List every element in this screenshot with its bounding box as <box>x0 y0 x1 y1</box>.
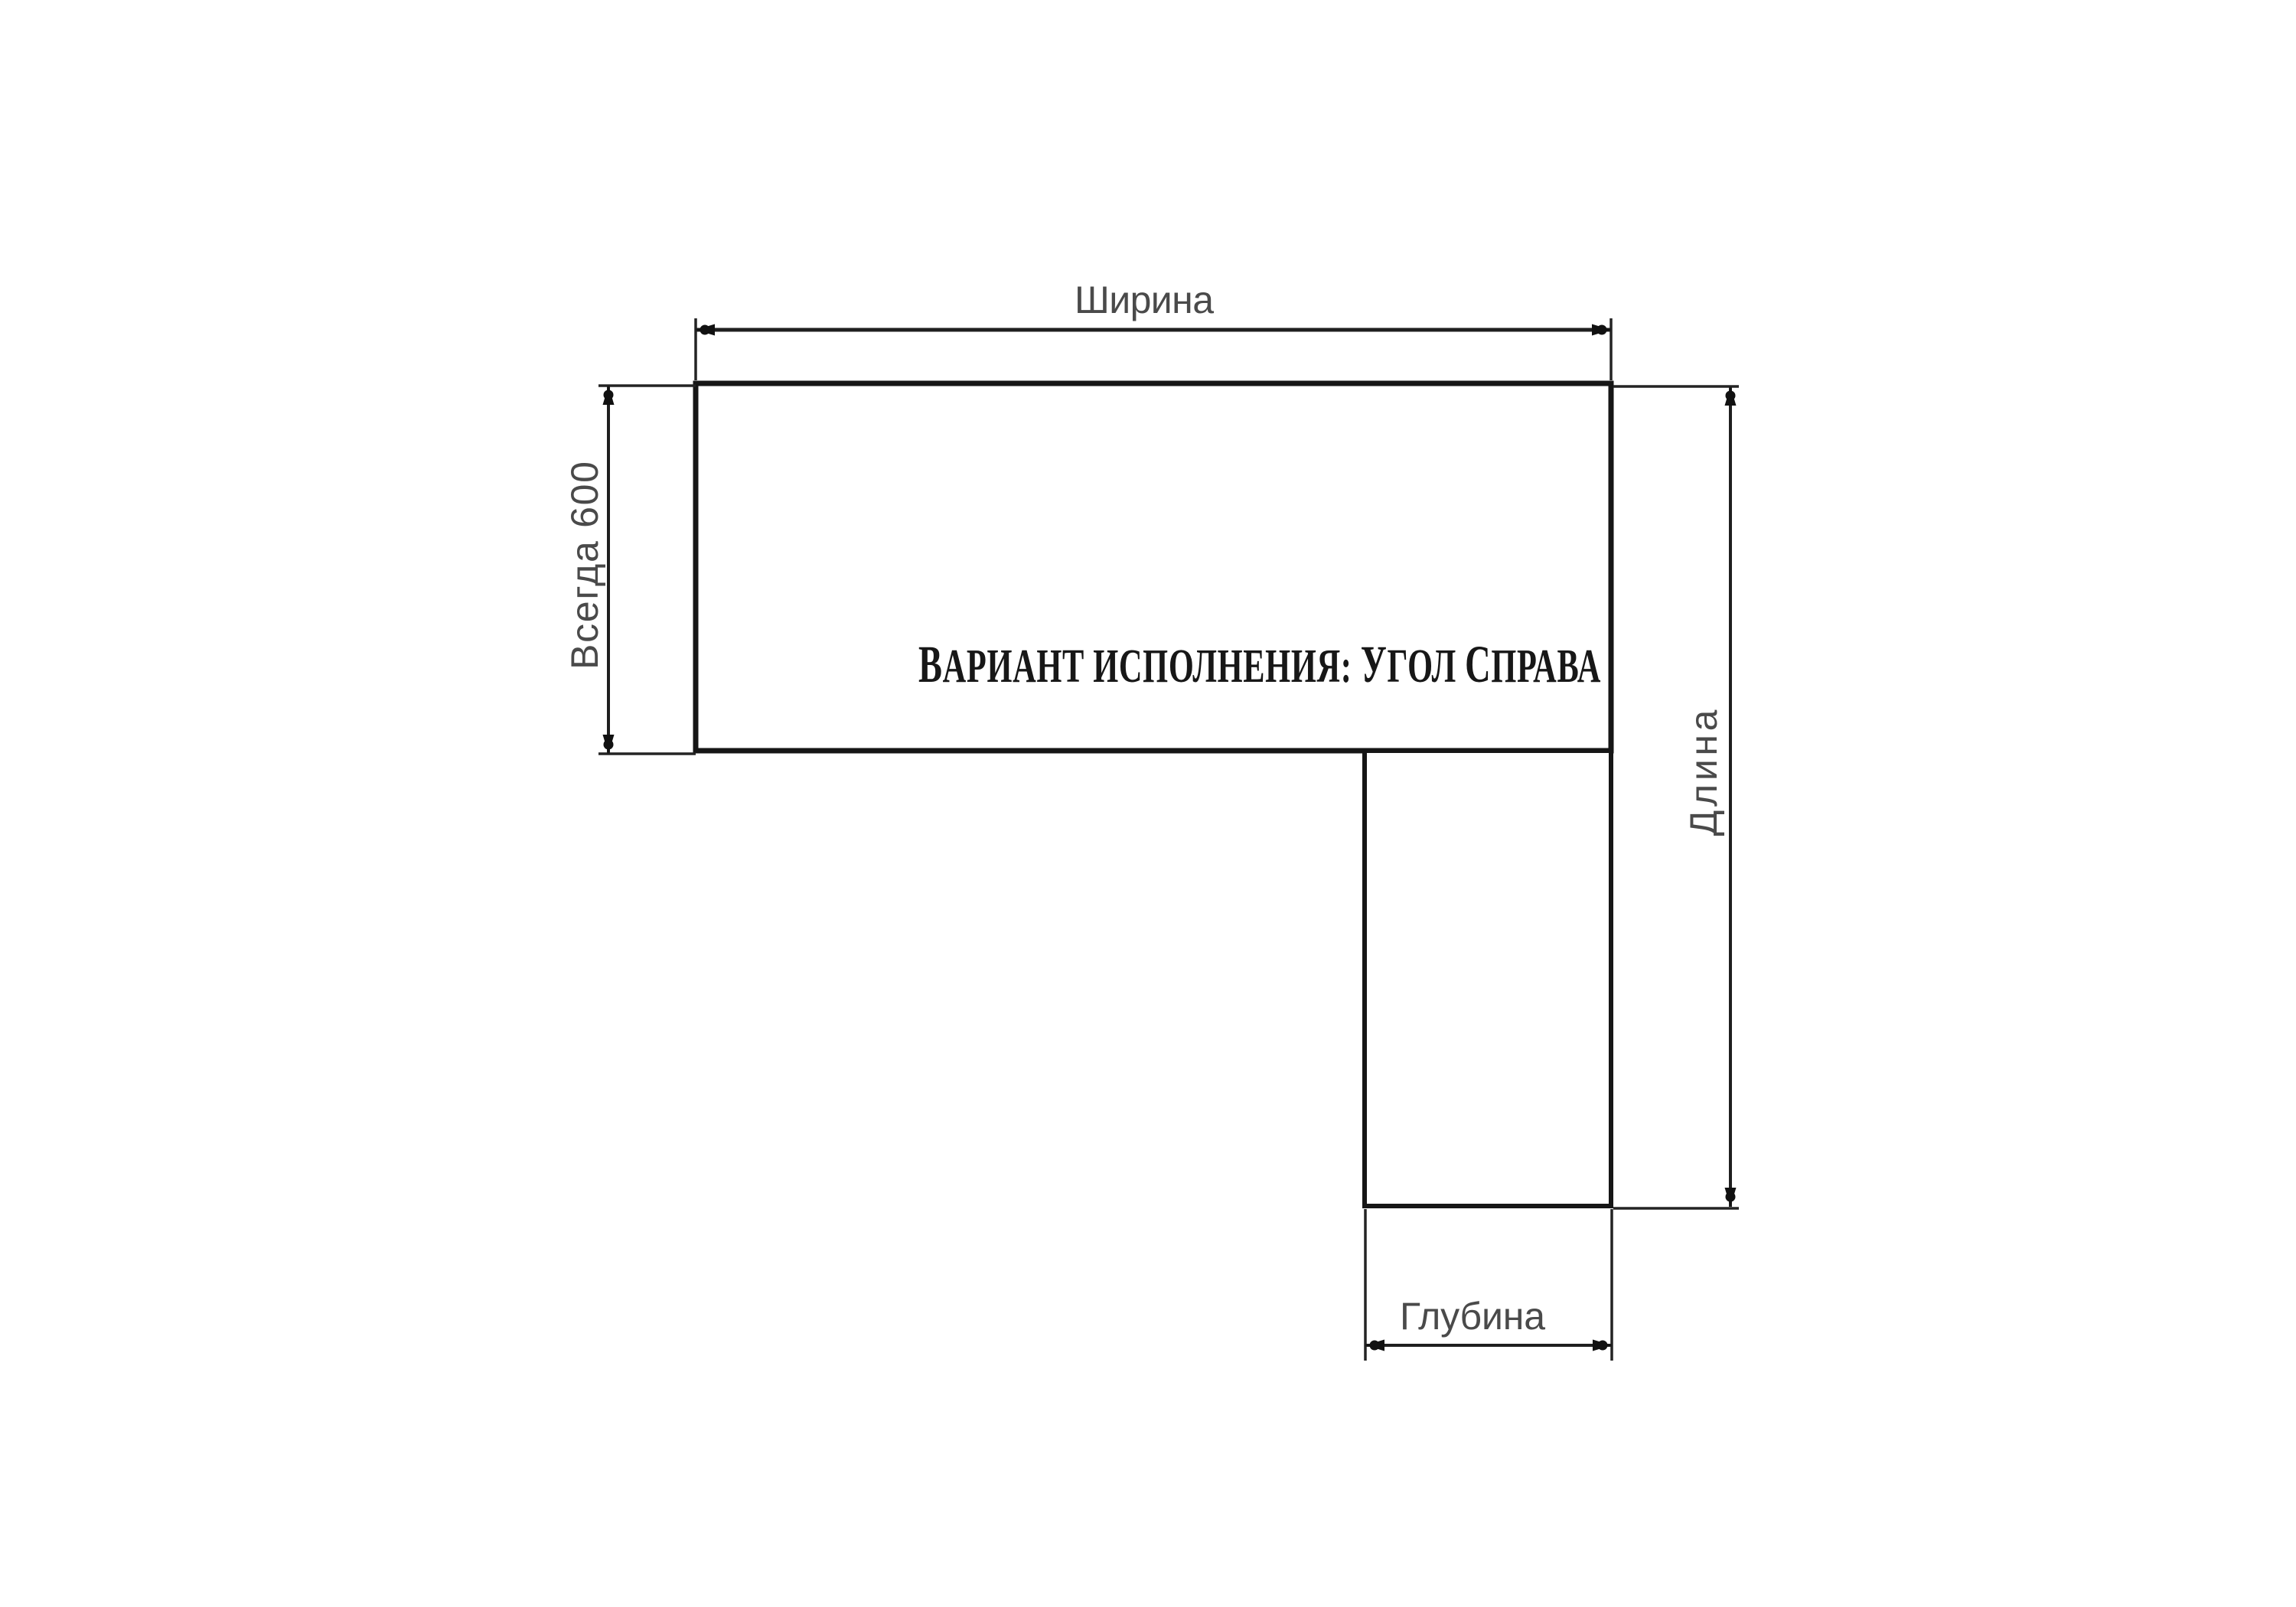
svg-text:Ширина: Ширина <box>1075 279 1214 321</box>
svg-text:Всегда 600: Всегда 600 <box>563 461 606 670</box>
svg-text:Длина: Длина <box>1682 709 1725 836</box>
svg-text:Глубина: Глубина <box>1400 1295 1545 1338</box>
svg-text:ВАРИАНТ ИСПОЛНЕНИЯ: УГОЛ СПРАВ: ВАРИАНТ ИСПОЛНЕНИЯ: УГОЛ СПРАВА <box>918 635 1601 693</box>
